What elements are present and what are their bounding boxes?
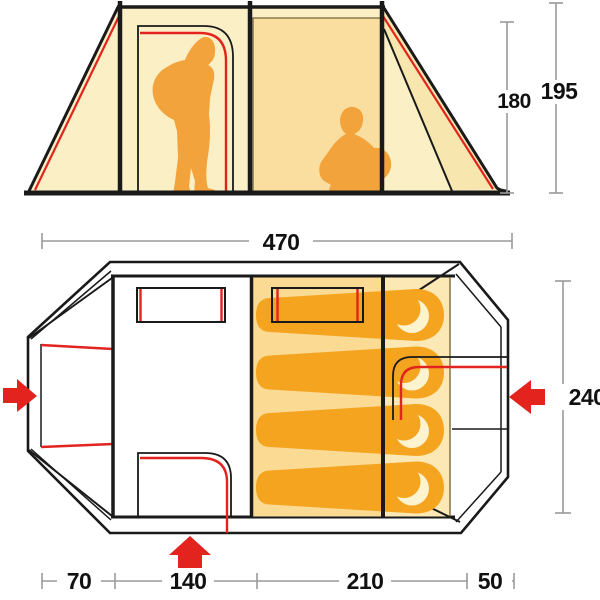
total-length-label: 470 — [263, 229, 300, 255]
dimension-inner-height: 180 — [492, 22, 536, 193]
entrance-arrow-bottom-icon — [169, 536, 211, 572]
entrance-arrow-right-icon — [509, 380, 545, 414]
left-vestibule-red-seam-top — [41, 345, 113, 349]
bottom-door-red-seam — [140, 458, 227, 533]
segment-label-vestibule-rear: 50 — [478, 568, 503, 594]
dimension-bottom-scale: 70 140 210 50 — [42, 568, 514, 594]
outer-height-label: 195 — [541, 78, 579, 104]
living-room-window — [137, 288, 225, 322]
entrance-arrow-left-icon — [3, 379, 37, 412]
segment-label-sleeping-cabin: 210 — [347, 568, 384, 594]
side-elevation-view: 180 195 — [24, 1, 583, 194]
dimension-outer-height: 195 — [535, 3, 583, 193]
diagram-canvas: 180 195 470 — [0, 0, 600, 600]
width-label: 240 — [569, 384, 600, 410]
dimension-width: 240 — [555, 281, 600, 513]
segment-label-vestibule-front: 70 — [67, 568, 92, 594]
left-vestibule-red-seam-bottom — [41, 444, 113, 447]
segment-label-living-room: 140 — [170, 568, 207, 594]
dimension-total-length: 470 — [42, 229, 512, 255]
floor-plan-view: 470 — [3, 229, 600, 594]
inner-height-label: 180 — [497, 90, 531, 113]
tent-dimensions-diagram: 180 195 470 — [0, 0, 600, 600]
